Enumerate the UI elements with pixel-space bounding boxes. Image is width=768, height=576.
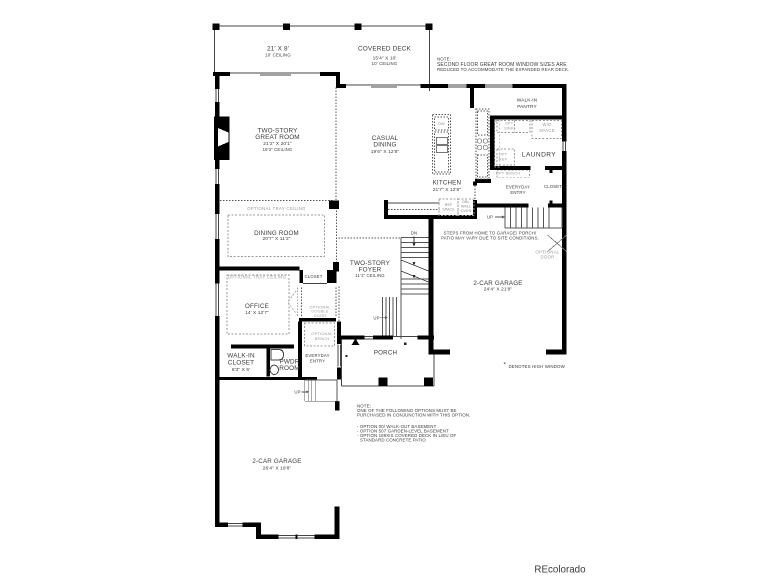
svg-text:LAUNDRY: LAUNDRY [522, 152, 556, 159]
svg-text:SINK: SINK [504, 126, 514, 131]
svg-text:REDUCED TO ACCOMMODATE THE EXP: REDUCED TO ACCOMMODATE THE EXPANDED REAR… [437, 67, 569, 72]
svg-text:10' CEILING: 10' CEILING [265, 52, 291, 57]
svg-text:OPTIONAL TRAY CEILING: OPTIONAL TRAY CEILING [247, 206, 306, 211]
svg-text:EVERYDAY: EVERYDAY [506, 185, 530, 190]
svg-text:WALL: WALL [461, 205, 471, 209]
svg-text:PANTRY: PANTRY [517, 104, 537, 110]
svg-text:DOOR: DOOR [540, 255, 554, 260]
svg-text:KITCHEN: KITCHEN [433, 180, 462, 187]
svg-text:19'3" CEILING: 19'3" CEILING [263, 147, 293, 152]
svg-text:2-CAR GARAGE: 2-CAR GARAGE [473, 280, 522, 287]
svg-text:DINING: DINING [373, 142, 396, 149]
svg-text:STANDARD CONCRETE PATIO: STANDARD CONCRETE PATIO [360, 438, 426, 443]
svg-text:PURCHASED IN CONJUNCTION WITH: PURCHASED IN CONJUNCTION WITH THIS OPTIO… [357, 413, 470, 418]
svg-text:OPT BENCH: OPT BENCH [496, 171, 520, 176]
svg-text:14' X 12'7": 14' X 12'7" [245, 310, 269, 316]
svg-text:19'6" X 12'8": 19'6" X 12'8" [371, 149, 400, 155]
svg-text:DW: DW [438, 122, 445, 126]
svg-text:CLOSET: CLOSET [304, 274, 322, 279]
svg-text:W/D: W/D [542, 122, 551, 127]
svg-text:SPACE: SPACE [442, 208, 455, 212]
svg-text:REF: REF [445, 203, 453, 207]
svg-text:PATIO MAY VARY DUE TO SITE CON: PATIO MAY VARY DUE TO SITE CONDITIONS. [441, 236, 539, 241]
svg-text:11'1" CEILING: 11'1" CEILING [355, 273, 385, 278]
svg-text:UP: UP [487, 215, 493, 220]
svg-text:GREAT ROOM: GREAT ROOM [255, 134, 300, 141]
svg-text:EVERYDAY: EVERYDAY [305, 353, 329, 358]
svg-text:ENTRY: ENTRY [310, 359, 325, 364]
svg-text:26'4" X 19'8": 26'4" X 19'8" [263, 466, 292, 472]
svg-text:PORCH: PORCH [374, 350, 397, 357]
svg-text:REcolorado: REcolorado [534, 564, 586, 575]
svg-text:DOOR: DOOR [314, 313, 326, 318]
svg-text:SPACE: SPACE [539, 128, 555, 133]
svg-text:WALK-IN: WALK-IN [517, 98, 538, 104]
svg-text:2-CAR GARAGE: 2-CAR GARAGE [252, 458, 301, 465]
svg-text:NOTE:: NOTE: [437, 57, 451, 62]
svg-text:OPTIONAL TRAY CEILING: OPTIONAL TRAY CEILING [228, 275, 287, 280]
svg-text:ROOM: ROOM [279, 365, 299, 372]
svg-text:DBL: DBL [462, 200, 469, 204]
svg-text:UP: UP [294, 390, 300, 395]
svg-text:BENCH: BENCH [315, 336, 330, 341]
svg-text:UP: UP [373, 315, 379, 320]
svg-text:DENOTES HIGH WINDOW: DENOTES HIGH WINDOW [509, 364, 566, 369]
svg-text:8'3" X 5': 8'3" X 5' [232, 367, 250, 373]
svg-text:REF: REF [499, 157, 508, 162]
svg-text:COVERED DECK: COVERED DECK [358, 46, 412, 53]
svg-text:OFFICE: OFFICE [245, 303, 269, 310]
svg-text:21'7" X 12'8": 21'7" X 12'8" [433, 187, 462, 193]
svg-text:OVEN: OVEN [461, 209, 472, 213]
svg-text:CLOSET: CLOSET [228, 359, 254, 366]
svg-text:24'4" X 21'8": 24'4" X 21'8" [484, 286, 513, 292]
svg-text:DINING ROOM: DINING ROOM [254, 230, 299, 237]
svg-text:20'7" X 11'2": 20'7" X 11'2" [262, 236, 290, 242]
svg-text:ENTRY: ENTRY [510, 190, 525, 195]
svg-text:DN: DN [411, 231, 418, 236]
svg-text:10' CEILING: 10' CEILING [372, 61, 398, 66]
svg-text:CLOSET: CLOSET [544, 184, 562, 189]
